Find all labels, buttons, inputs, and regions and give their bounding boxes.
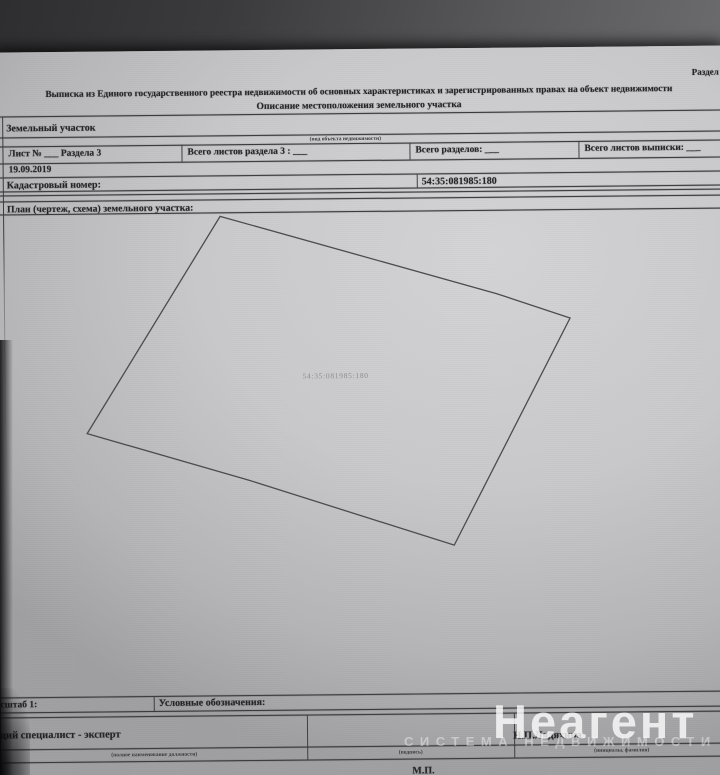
extract-date: 19.09.2019 [9, 165, 52, 175]
table-border-line [0, 171, 720, 179]
specialist-name: Н.П.Лядяхина [513, 730, 582, 742]
document-paper: Раздел Выписка из Единого государственно… [0, 46, 720, 775]
cadastral-number-label: Кадастровый номер: [7, 180, 101, 192]
table-border-line [0, 195, 720, 203]
cadastral-number-value: 54:35:081985:180 [422, 176, 497, 188]
object-type-label: Земельный участок [6, 123, 95, 135]
table-column-divider [578, 141, 579, 158]
table-border-line [0, 157, 720, 165]
name-hint: (инициалы, фамилия) [514, 747, 720, 755]
sections-total-cell: Всего разделов: ___ [415, 145, 499, 156]
table-column-divider [409, 143, 410, 160]
stamp-place-label: М.П. [412, 765, 434, 775]
parcel-polygon [85, 213, 572, 549]
sheet-number-cell: Лист № ___ Раздела 3 [8, 149, 101, 160]
legend-label: Условные обозначения: [159, 697, 266, 709]
signature-hint: (подпись) [307, 749, 514, 757]
sheets-total-cell: Всего листов выписки: ___ [584, 143, 700, 154]
table-column-divider [181, 145, 182, 162]
parcel-plan-drawing [0, 208, 720, 697]
table-column-divider [154, 696, 155, 711]
scale-label: Масштаб 1: [0, 700, 37, 710]
section-corner-label: Раздел [692, 67, 719, 77]
position-hint: (полное наименование должности) [1, 751, 307, 760]
photo-of-document: Раздел Выписка из Единого государственно… [0, 0, 720, 775]
table-column-divider [417, 173, 418, 187]
sheets-in-section-cell: Всего листов раздела 3 : ___ [187, 147, 307, 158]
specialist-position-title: Ведущий специалист - эксперт [0, 729, 121, 741]
parcel-cadastral-label: 54:35:081985:180 [281, 371, 391, 381]
